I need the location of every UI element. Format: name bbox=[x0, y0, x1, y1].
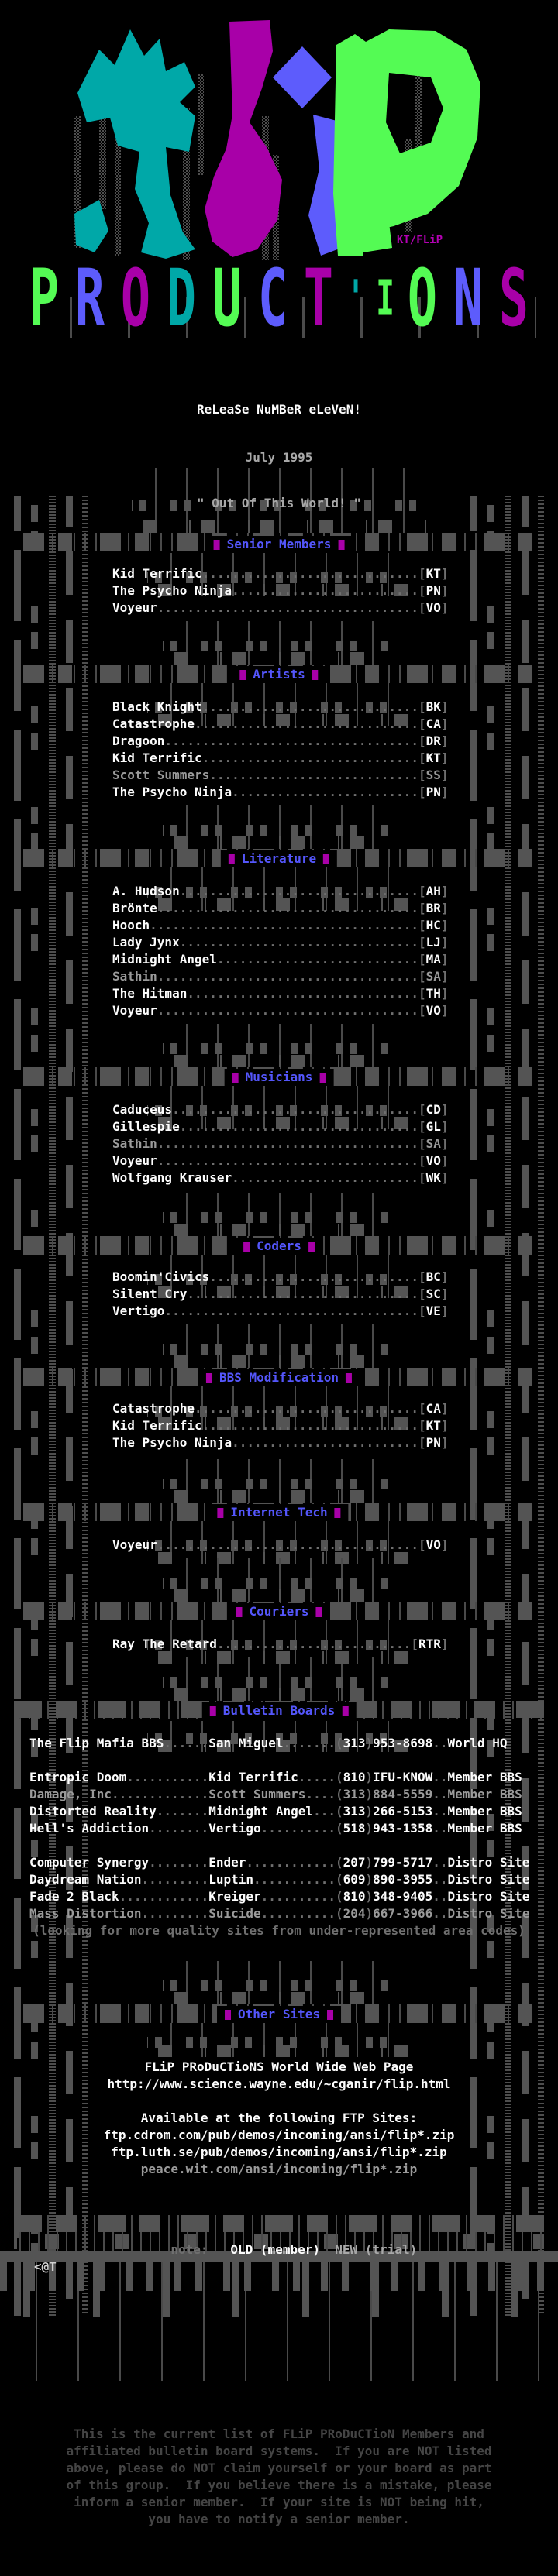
tag-bracket: ] bbox=[441, 600, 449, 615]
member-row: Silent Cry..............................… bbox=[112, 1286, 449, 1303]
tag-bracket: ] bbox=[441, 901, 449, 915]
member-name: Kid Terrific bbox=[112, 750, 202, 765]
tag-bracket: [ bbox=[418, 566, 426, 581]
magenta-block-icon bbox=[338, 540, 344, 550]
magenta-block-icon bbox=[214, 540, 220, 550]
member-row: Kid Terrific............................… bbox=[112, 565, 449, 582]
phone-area: 810 bbox=[343, 1770, 366, 1784]
member-row: Sathin..................................… bbox=[112, 1135, 449, 1152]
tag-bracket: ] bbox=[441, 884, 449, 898]
tag-bracket: ] bbox=[441, 1286, 449, 1301]
phone-number: 266-5153 bbox=[373, 1804, 432, 1819]
leader-dots: .......... bbox=[261, 1821, 336, 1836]
member-row: Lady Jynx...............................… bbox=[112, 934, 449, 951]
member-name: The Psycho Ninja bbox=[112, 785, 232, 799]
member-name: Sathin bbox=[112, 969, 157, 984]
phone-paren: ( bbox=[336, 1770, 343, 1784]
phone-area: 609 bbox=[343, 1872, 366, 1887]
member-row: The Psycho Ninja........................… bbox=[112, 784, 449, 801]
member-tag: SC bbox=[426, 1286, 441, 1301]
leader-dots: .. bbox=[432, 1906, 447, 1921]
phone-area: 207 bbox=[343, 1855, 366, 1870]
bbs-role: Distro Site bbox=[447, 1855, 529, 1870]
leader-dots: ................................. bbox=[172, 1102, 418, 1117]
bbs-row: Mass Distortion.........Suicide.........… bbox=[29, 1905, 529, 1922]
section-header-label: Internet Tech bbox=[230, 1504, 327, 1521]
member-tag: GL bbox=[426, 1119, 441, 1134]
tag-bracket: [ bbox=[418, 733, 426, 748]
release-tagline: " Out Of This World! " bbox=[0, 495, 558, 512]
leader-dots: .................................... bbox=[150, 918, 418, 933]
bbs-sysop: Kid Terrific bbox=[208, 1770, 298, 1784]
leader-dots: .... bbox=[305, 1787, 336, 1801]
member-name: The Hitman bbox=[112, 986, 187, 1001]
tag-bracket: ] bbox=[441, 566, 449, 581]
tag-bracket: [ bbox=[411, 1637, 418, 1651]
magenta-block-icon bbox=[217, 1508, 223, 1518]
section-header-bulletin-boards: Bulletin Boards bbox=[202, 1702, 356, 1719]
member-name: Catastrophe bbox=[112, 716, 195, 731]
member-name: Gillespie bbox=[112, 1119, 180, 1134]
section-header-label: Coders bbox=[257, 1238, 301, 1255]
member-name: Kid Terrific bbox=[112, 566, 202, 581]
ansi-ornament bbox=[163, 805, 395, 849]
logo-word-letter: O bbox=[408, 259, 437, 338]
member-tag: SA bbox=[426, 969, 441, 984]
phone-paren: ( bbox=[336, 1787, 343, 1801]
member-name: Silent Cry bbox=[112, 1286, 187, 1301]
member-name: Vertigo bbox=[112, 1303, 164, 1318]
ansi-ornament bbox=[147, 2023, 411, 2057]
phone-area: 518 bbox=[343, 1821, 366, 1836]
member-tag: RTR bbox=[418, 1637, 441, 1651]
section-header-couriers: Couriers bbox=[228, 1603, 329, 1620]
footer-line: This is the current list of FLiP PRoDuCT… bbox=[0, 2426, 558, 2443]
tag-bracket: ] bbox=[441, 583, 449, 598]
bbs-name: Computer Synergy bbox=[29, 1855, 149, 1870]
member-row: Boomin'Civics...........................… bbox=[112, 1269, 449, 1286]
member-name: Dragoon bbox=[112, 733, 164, 748]
member-row: Midnight Angel..........................… bbox=[112, 951, 449, 968]
member-row: Kid Terrific............................… bbox=[112, 1417, 449, 1434]
logo-word-letter: C bbox=[258, 259, 288, 338]
section-header-label: Artists bbox=[253, 666, 305, 683]
member-tag: CA bbox=[426, 716, 441, 731]
tag-bracket: [ bbox=[418, 1003, 426, 1018]
artist-tag: <@T bbox=[34, 2258, 57, 2275]
member-tag: MA bbox=[426, 952, 441, 967]
section-header-bbs-modification: BBS Modification bbox=[198, 1369, 360, 1386]
bbs-role: Distro Site bbox=[447, 1872, 529, 1887]
member-tag: VE bbox=[426, 1303, 441, 1318]
tag-bracket: [ bbox=[418, 1119, 426, 1134]
member-tag: HC bbox=[426, 918, 441, 933]
tag-bracket: [ bbox=[418, 1170, 426, 1185]
leader-dots: ..... bbox=[298, 1770, 336, 1784]
bbs-name: Fade 2 Black bbox=[29, 1889, 119, 1904]
member-name: Voyeur bbox=[112, 1153, 157, 1168]
phone-paren: ( bbox=[336, 1872, 343, 1887]
member-tag: KT bbox=[426, 1418, 441, 1433]
ansi-ornament bbox=[163, 1193, 395, 1236]
bbs-role: Distro Site bbox=[447, 1889, 529, 1904]
leader-dots: ........................... bbox=[217, 952, 418, 967]
leader-dots: ......................... bbox=[232, 785, 418, 799]
release-date: July 1995 bbox=[0, 449, 558, 466]
logo-word-letter: P bbox=[29, 259, 59, 338]
phone-paren: ) bbox=[366, 1821, 374, 1836]
tag-bracket: ] bbox=[441, 1401, 449, 1416]
magenta-block-icon bbox=[210, 1706, 216, 1716]
member-name: Wolfgang Krauser bbox=[112, 1170, 232, 1185]
magenta-block-icon bbox=[342, 1706, 348, 1716]
magenta-block-icon bbox=[232, 1073, 239, 1083]
logo-word-letter: N bbox=[453, 259, 483, 338]
leader-dots: ........ bbox=[149, 1855, 208, 1870]
leader-dots: ......... bbox=[142, 1906, 209, 1921]
tag-bracket: ] bbox=[441, 935, 449, 950]
leader-dots: ............................. bbox=[202, 1418, 418, 1433]
phone-paren: ( bbox=[336, 1906, 343, 1921]
section-header-literature: Literature bbox=[221, 850, 337, 867]
member-name: Sathin bbox=[112, 1136, 157, 1151]
bbs-name: Hell's Addiction bbox=[29, 1821, 149, 1836]
magenta-block-icon bbox=[308, 1242, 315, 1252]
member-name: Caduceus bbox=[112, 1102, 172, 1117]
legend-note-label: note: bbox=[170, 2242, 208, 2257]
leader-dots: .. bbox=[432, 1770, 447, 1784]
tag-bracket: ] bbox=[441, 986, 449, 1001]
leader-dots: ............................. bbox=[202, 750, 418, 765]
member-tag: PN bbox=[426, 785, 441, 799]
ansi-ornament bbox=[163, 1324, 395, 1368]
magenta-block-icon bbox=[225, 2010, 231, 2020]
member-tag: CD bbox=[426, 1102, 441, 1117]
member-name: Lady Jynx bbox=[112, 935, 180, 950]
bbs-role: Member BBS bbox=[447, 1787, 522, 1801]
member-tag: PN bbox=[426, 1435, 441, 1450]
section-header-senior-members: Senior Members bbox=[206, 536, 353, 553]
leader-dots: ................................... bbox=[157, 1537, 418, 1552]
bbs-role: Member BBS bbox=[447, 1804, 522, 1819]
phone-paren: ( bbox=[336, 1821, 343, 1836]
member-tag: BR bbox=[426, 901, 441, 915]
leader-dots: ......... bbox=[142, 1872, 209, 1887]
phone-paren: ) bbox=[366, 1855, 374, 1870]
leader-dots: ......................... bbox=[232, 583, 418, 598]
phone-paren: ) bbox=[366, 1804, 374, 1819]
logo-word-letter: T bbox=[304, 259, 333, 338]
member-row: Wolfgang Krauser........................… bbox=[112, 1170, 449, 1187]
leader-dots: ............................. bbox=[202, 566, 418, 581]
leader-dots: ................................... bbox=[157, 1003, 418, 1018]
leader-dots: .......... bbox=[261, 1906, 336, 1921]
tag-bracket: [ bbox=[418, 1102, 426, 1117]
legend-new-label: NEW (trial) bbox=[335, 2242, 417, 2257]
bbs-sysop: Vertigo bbox=[208, 1821, 260, 1836]
leader-dots: ...... bbox=[164, 1736, 208, 1750]
legend-note: note: OLD (member) NEW (trial) bbox=[0, 2224, 558, 2275]
phone-number: 943-1358 bbox=[373, 1821, 432, 1836]
magenta-block-icon bbox=[316, 1607, 322, 1617]
member-row: Brönte..................................… bbox=[112, 900, 449, 917]
bbs-row: Fade 2 Black............Kreiger.........… bbox=[29, 1888, 529, 1905]
tag-bracket: [ bbox=[418, 1303, 426, 1318]
bbs-role: Member BBS bbox=[447, 1821, 522, 1836]
magenta-block-icon bbox=[239, 670, 246, 680]
tag-bracket: ] bbox=[441, 1303, 449, 1318]
leader-dots: ................................... bbox=[157, 969, 418, 984]
leader-dots: ................................... bbox=[157, 901, 418, 915]
tag-bracket: ] bbox=[441, 699, 449, 714]
member-row: The Psycho Ninja........................… bbox=[112, 1434, 449, 1451]
member-tag: KT bbox=[426, 750, 441, 765]
member-row: Caduceus................................… bbox=[112, 1101, 449, 1118]
phone-paren: ) bbox=[366, 1736, 374, 1750]
bbs-sysop: San Miguel bbox=[208, 1736, 283, 1750]
tag-bracket: [ bbox=[418, 716, 426, 731]
section-header-label: Literature bbox=[242, 850, 316, 867]
logo-word-letter: U bbox=[212, 259, 242, 338]
phone-paren: ) bbox=[366, 1906, 374, 1921]
tag-bracket: [ bbox=[418, 768, 426, 782]
leader-dots: .. bbox=[432, 1736, 447, 1750]
phone-number: 884-5559 bbox=[373, 1787, 432, 1801]
ansi-ornament bbox=[163, 1459, 395, 1503]
tag-bracket: ] bbox=[441, 1269, 449, 1284]
bbs-name: Distorted Reality bbox=[29, 1804, 157, 1819]
tag-bracket: [ bbox=[418, 1401, 426, 1416]
tag-bracket: [ bbox=[418, 785, 426, 799]
tag-bracket: [ bbox=[418, 918, 426, 933]
member-tag: VO bbox=[426, 1153, 441, 1168]
member-row: Ray The Retard..........................… bbox=[112, 1636, 449, 1653]
footer-line: above, please do NOT claim yourself or y… bbox=[0, 2460, 558, 2477]
tag-bracket: [ bbox=[418, 986, 426, 1001]
leader-dots: ............................... bbox=[187, 1286, 418, 1301]
tag-bracket: [ bbox=[418, 884, 426, 898]
bbs-role: Member BBS bbox=[447, 1770, 522, 1784]
section-header-label: Musicians bbox=[246, 1069, 313, 1086]
member-name: A. Hudson bbox=[112, 884, 180, 898]
tag-bracket: ] bbox=[441, 733, 449, 748]
tag-bracket: ] bbox=[441, 768, 449, 782]
member-name: Boomin'Civics bbox=[112, 1269, 209, 1284]
member-name: Black Knight bbox=[112, 699, 202, 714]
leader-dots: .. bbox=[432, 1804, 447, 1819]
bbs-sysop: Midnight Angel bbox=[208, 1804, 313, 1819]
tag-bracket: [ bbox=[418, 1537, 426, 1552]
phone-number: 799-5717 bbox=[373, 1855, 432, 1870]
member-name: Scott Summers bbox=[112, 768, 209, 782]
logo-word-letter: O bbox=[121, 259, 150, 338]
bbs-row: The Flip Mafia BBS......San Miguel......… bbox=[29, 1735, 508, 1752]
leader-dots: .. bbox=[432, 1821, 447, 1836]
member-row: Kid Terrific............................… bbox=[112, 750, 449, 767]
tag-bracket: ] bbox=[441, 1153, 449, 1168]
phone-area: 810 bbox=[343, 1889, 366, 1904]
phone-paren: ) bbox=[366, 1872, 374, 1887]
magenta-block-icon bbox=[335, 1508, 341, 1518]
leader-dots: ....... bbox=[157, 1804, 208, 1819]
member-tag: BC bbox=[426, 1269, 441, 1284]
phone-number: 890-3955 bbox=[373, 1872, 432, 1887]
leader-dots: ....... bbox=[284, 1736, 336, 1750]
section-header-coders: Coders bbox=[236, 1238, 322, 1255]
tag-bracket: [ bbox=[418, 1418, 426, 1433]
member-row: Gillespie...............................… bbox=[112, 1118, 449, 1135]
phone-number: 667-3966 bbox=[373, 1906, 432, 1921]
release-title: ReLeaSe NuMBeR eLeVeN! bbox=[0, 401, 558, 418]
member-tag: PN bbox=[426, 583, 441, 598]
logo-word-letter: S bbox=[499, 259, 529, 338]
tag-bracket: ] bbox=[441, 1418, 449, 1433]
leader-dots: ............................... bbox=[187, 986, 418, 1001]
other-site-line: FLiP PRoDuCTioNS World Wide Web Page bbox=[0, 2059, 558, 2076]
section-header-musicians: Musicians bbox=[225, 1069, 334, 1086]
bbs-sysop: Suicide bbox=[208, 1906, 260, 1921]
tag-bracket: ] bbox=[441, 1637, 449, 1651]
member-row: Voyeur..................................… bbox=[112, 599, 449, 617]
other-site-line: ftp.luth.se/pub/demos/incoming/ansi/flip… bbox=[0, 2144, 558, 2161]
member-row: Catastrophe.............................… bbox=[112, 716, 449, 733]
member-tag: AH bbox=[426, 884, 441, 898]
member-tag: CA bbox=[426, 1401, 441, 1416]
tag-bracket: ] bbox=[441, 750, 449, 765]
tag-bracket: [ bbox=[418, 1136, 426, 1151]
leader-dots: .......................... bbox=[217, 1637, 411, 1651]
magenta-block-icon bbox=[236, 1607, 242, 1617]
logo-artist-signature: KT/FLiP bbox=[397, 235, 443, 246]
member-row: Black Knight............................… bbox=[112, 699, 449, 716]
phone-number: IFU-KNOW bbox=[373, 1770, 432, 1784]
member-row: Sathin..................................… bbox=[112, 968, 449, 985]
member-row: Hooch...................................… bbox=[112, 917, 449, 934]
magenta-block-icon bbox=[229, 854, 235, 864]
leader-dots: .............................. bbox=[195, 1401, 418, 1416]
leader-dots: .................................. bbox=[164, 1303, 418, 1318]
leader-dots: .. bbox=[432, 1787, 447, 1801]
leader-dots: ................................ bbox=[180, 1119, 418, 1134]
magenta-block-icon bbox=[327, 2010, 333, 2020]
tag-bracket: [ bbox=[418, 699, 426, 714]
other-site-line: peace.wit.com/ansi/incoming/flip*.zip bbox=[0, 2161, 558, 2178]
member-row: Scott Summers...........................… bbox=[112, 767, 449, 784]
other-site-line: ftp.cdrom.com/pub/demos/incoming/ansi/fl… bbox=[0, 2127, 558, 2144]
ansi-ornament bbox=[14, 496, 88, 2316]
logo-word-productions: PRODUCT'IONS bbox=[22, 260, 536, 338]
section-header-label: Other Sites bbox=[238, 2006, 320, 2023]
member-row: A. Hudson...............................… bbox=[112, 883, 449, 900]
bbs-name: Daydream Nation bbox=[29, 1872, 142, 1887]
member-name: Hooch bbox=[112, 918, 150, 933]
phone-area: 313 bbox=[343, 1804, 366, 1819]
leader-dots: ......................... bbox=[232, 1435, 418, 1450]
tag-bracket: [ bbox=[418, 901, 426, 915]
member-name: Kid Terrific bbox=[112, 1418, 202, 1433]
leader-dots: .. bbox=[432, 1889, 447, 1904]
member-name: Voyeur bbox=[112, 600, 157, 615]
section-header-label: Couriers bbox=[249, 1603, 308, 1620]
logo-word-letter: D bbox=[167, 259, 196, 338]
magenta-block-icon bbox=[206, 1373, 212, 1383]
phone-paren: ( bbox=[336, 1804, 343, 1819]
logo-letter-i-dot bbox=[273, 46, 332, 108]
bbs-role: Distro Site bbox=[447, 1906, 529, 1921]
leader-dots: ........... bbox=[126, 1770, 208, 1784]
member-row: Dragoon.................................… bbox=[112, 733, 449, 750]
leader-dots: ............ bbox=[246, 1855, 336, 1870]
tag-bracket: ] bbox=[441, 969, 449, 984]
leader-dots: .. bbox=[432, 1855, 447, 1870]
bbs-name: Damage, Inc bbox=[29, 1787, 112, 1801]
member-row: Vertigo.................................… bbox=[112, 1303, 449, 1320]
bbs-name: Entropic Doom bbox=[29, 1770, 126, 1784]
phone-paren: ) bbox=[366, 1787, 374, 1801]
member-name: Ray The Retard bbox=[112, 1637, 217, 1651]
phone-area: 313 bbox=[343, 1787, 366, 1801]
tag-bracket: ] bbox=[441, 1435, 449, 1450]
phone-number: 953-8698 bbox=[373, 1736, 432, 1750]
tag-bracket: [ bbox=[418, 583, 426, 598]
tag-bracket: ] bbox=[441, 952, 449, 967]
leader-dots: ........ bbox=[149, 1821, 208, 1836]
tag-bracket: [ bbox=[418, 952, 426, 967]
phone-paren: ( bbox=[336, 1736, 343, 1750]
magenta-block-icon bbox=[312, 670, 319, 680]
magenta-block-icon bbox=[243, 1242, 250, 1252]
tag-bracket: ] bbox=[441, 1119, 449, 1134]
member-tag: VO bbox=[426, 1003, 441, 1018]
leader-dots: ............................. bbox=[202, 699, 418, 714]
bbs-name: Mass Distortion bbox=[29, 1906, 142, 1921]
bbs-row: Computer Synergy........Ender...........… bbox=[29, 1854, 529, 1871]
section-header-internet-tech: Internet Tech bbox=[209, 1504, 348, 1521]
leader-dots: .............................. bbox=[195, 716, 418, 731]
member-tag: LJ bbox=[426, 935, 441, 950]
ansi-ornament bbox=[163, 621, 395, 665]
member-name: Midnight Angel bbox=[112, 952, 217, 967]
tag-bracket: [ bbox=[418, 600, 426, 615]
tag-bracket: [ bbox=[418, 969, 426, 984]
tag-bracket: [ bbox=[418, 1435, 426, 1450]
logo-word-letter: I bbox=[376, 259, 394, 338]
tag-bracket: ] bbox=[441, 1537, 449, 1552]
member-name: Voyeur bbox=[112, 1537, 157, 1552]
member-name: Voyeur bbox=[112, 1003, 157, 1018]
bbs-name: The Flip Mafia BBS bbox=[29, 1736, 164, 1750]
phone-number: 348-9405 bbox=[373, 1889, 432, 1904]
other-site-line: http://www.science.wayne.edu/~cganir/fli… bbox=[0, 2076, 558, 2093]
leader-dots: .......... bbox=[261, 1889, 336, 1904]
member-name: The Psycho Ninja bbox=[112, 1435, 232, 1450]
member-name: Catastrophe bbox=[112, 1401, 195, 1416]
flip-logo-art bbox=[0, 0, 558, 260]
leader-dots: ................................... bbox=[157, 1153, 418, 1168]
bbs-row: Distorted Reality.......Midnight Angel..… bbox=[29, 1803, 522, 1820]
leader-dots: ................................ bbox=[180, 935, 418, 950]
phone-area: 204 bbox=[343, 1906, 366, 1921]
tag-bracket: ] bbox=[441, 716, 449, 731]
member-row: The Psycho Ninja........................… bbox=[112, 582, 449, 599]
bbs-sysop: Kreiger bbox=[208, 1889, 260, 1904]
phone-paren: ) bbox=[366, 1770, 374, 1784]
section-header-other-sites: Other Sites bbox=[217, 2006, 341, 2023]
section-header-artists: Artists bbox=[232, 666, 325, 683]
phone-paren: ( bbox=[336, 1889, 343, 1904]
leader-dots: ................................... bbox=[157, 1136, 418, 1151]
tag-bracket: ] bbox=[441, 1136, 449, 1151]
